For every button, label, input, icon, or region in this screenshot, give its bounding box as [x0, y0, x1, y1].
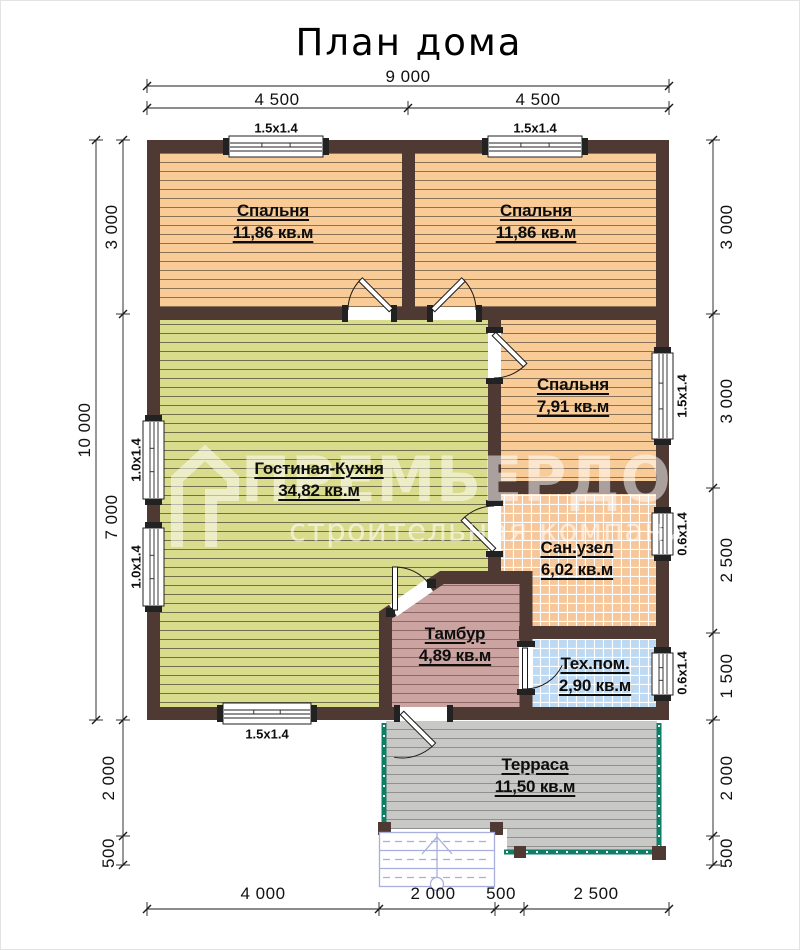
door-jamb [394, 705, 400, 722]
dim-line-bottom [143, 902, 673, 916]
window-jamb [482, 138, 488, 155]
window-label-right-bath: 0.6x1.4 [675, 512, 690, 555]
window-label-top-right: 1.5x1.4 [513, 121, 556, 136]
door-leaf [393, 567, 398, 610]
dim-right-r3: 2 500 [717, 537, 737, 582]
dim-right-r4: 1 500 [717, 653, 737, 698]
dim-bottom-b3: 500 [486, 884, 516, 904]
door-jamb [486, 551, 503, 557]
room-area: 7,91 кв.м [537, 396, 609, 418]
dim-right-r1: 3 000 [717, 204, 737, 249]
window-jamb [654, 507, 671, 513]
window-label-right-utility: 0.6x1.4 [675, 651, 690, 694]
room-name: Терраса [495, 754, 576, 776]
window-jamb [654, 555, 671, 561]
door-jamb [517, 689, 535, 695]
window-frame [652, 353, 673, 439]
floor-plan-svg [1, 1, 799, 949]
window-living-left-lower [143, 522, 164, 612]
window-frame [488, 136, 582, 157]
label-bedroom-right: Спальня 11,86 кв.м [496, 200, 577, 245]
label-bathroom: Сан.узел 6,02 кв.м [540, 537, 613, 582]
room-name: Спальня [233, 200, 314, 222]
door-jamb [486, 500, 503, 506]
window-label-right-bedroom: 1.5x1.4 [675, 374, 690, 417]
door-opening [348, 307, 391, 320]
door-jamb [517, 641, 535, 647]
dim-top-left: 4 500 [254, 90, 299, 110]
window-jamb [223, 138, 229, 155]
window-label-left-upper: 1.0x1.4 [129, 438, 144, 481]
dim-top-right: 4 500 [515, 90, 560, 110]
window-jamb [145, 415, 162, 421]
room-name: Тамбур [419, 623, 491, 645]
window-jamb [654, 347, 671, 353]
label-bedroom-small: Спальня 7,91 кв.м [537, 374, 609, 419]
dim-bottom-b4: 2 500 [573, 884, 618, 904]
door-jamb [476, 305, 482, 322]
window-bedroom-left [223, 136, 329, 157]
room-area: 2,90 кв.м [559, 675, 631, 697]
window-jamb [654, 647, 671, 653]
window-frame [229, 136, 323, 157]
window-bedroom-small [652, 347, 673, 445]
room-area: 4,89 кв.м [419, 645, 491, 667]
dim-left-stairs: 500 [99, 838, 119, 868]
window-jamb [145, 499, 162, 505]
dim-top-total: 9 000 [385, 67, 430, 87]
door-jamb [447, 705, 453, 722]
room-area: 11,86 кв.м [233, 222, 314, 244]
dim-left-top: 3 000 [102, 204, 122, 249]
door-jamb [342, 305, 348, 322]
window-living-bottom [217, 703, 317, 724]
window-utility [652, 647, 673, 701]
window-frame [652, 513, 673, 555]
room-area: 11,50 кв.м [495, 776, 576, 798]
room-name: Тех.пом. [559, 653, 631, 675]
room-name: Гостиная-Кухня [254, 458, 383, 480]
label-bedroom-left: Спальня 11,86 кв.м [233, 200, 314, 245]
dim-right-r2: 3 000 [717, 378, 737, 423]
door-jamb [486, 327, 503, 333]
room-area: 11,86 кв.м [496, 222, 577, 244]
window-label-bottom: 1.5x1.4 [245, 727, 288, 742]
window-jamb [323, 138, 329, 155]
window-frame [652, 653, 673, 695]
window-frame [143, 421, 164, 499]
window-label-top-left: 1.5x1.4 [254, 121, 297, 136]
stairs [380, 833, 495, 891]
label-vestibule: Тамбур 4,89 кв.м [419, 623, 491, 668]
window-frame [223, 703, 311, 724]
door-opening [433, 307, 476, 320]
dim-left-terrace: 2 000 [99, 755, 119, 800]
terrace-post [652, 846, 666, 860]
dim-left-total: 10 000 [75, 403, 95, 458]
window-bedroom-right [482, 136, 588, 157]
label-living-kitchen: Гостиная-Кухня 34,82 кв.м [254, 458, 383, 503]
window-jamb [145, 522, 162, 528]
room-name: Сан.узел [540, 537, 613, 559]
window-jamb [654, 695, 671, 701]
floor-plan-page: ПРЕМЬЕРДОМ строительная компания План до… [0, 0, 800, 950]
dim-bottom-b1: 4 000 [240, 884, 285, 904]
dim-line-top-halves [143, 101, 673, 115]
window-jamb [217, 705, 223, 722]
label-utility: Тех.пом. 2,90 кв.м [559, 653, 631, 698]
room-name: Спальня [537, 374, 609, 396]
room-area: 6,02 кв.м [540, 559, 613, 581]
room-area: 34,82 кв.м [254, 480, 383, 502]
door-jamb [486, 378, 503, 384]
terrace-post [514, 846, 526, 858]
dim-right-terrace: 2 000 [717, 755, 737, 800]
window-bathroom [652, 507, 673, 561]
window-living-left-upper [143, 415, 164, 505]
page-title: План дома [296, 21, 523, 64]
window-label-left-lower: 1.0x1.4 [129, 545, 144, 588]
window-jamb [582, 138, 588, 155]
window-frame [143, 528, 164, 606]
window-jamb [145, 606, 162, 612]
dim-right-stairs: 500 [717, 838, 737, 868]
room-name: Спальня [496, 200, 577, 222]
window-jamb [311, 705, 317, 722]
dim-bottom-b2: 2 000 [410, 884, 455, 904]
dim-left-mid: 7 000 [102, 494, 122, 539]
door-leaf [523, 648, 528, 689]
window-jamb [654, 439, 671, 445]
label-terrace: Терраса 11,50 кв.м [495, 754, 576, 799]
